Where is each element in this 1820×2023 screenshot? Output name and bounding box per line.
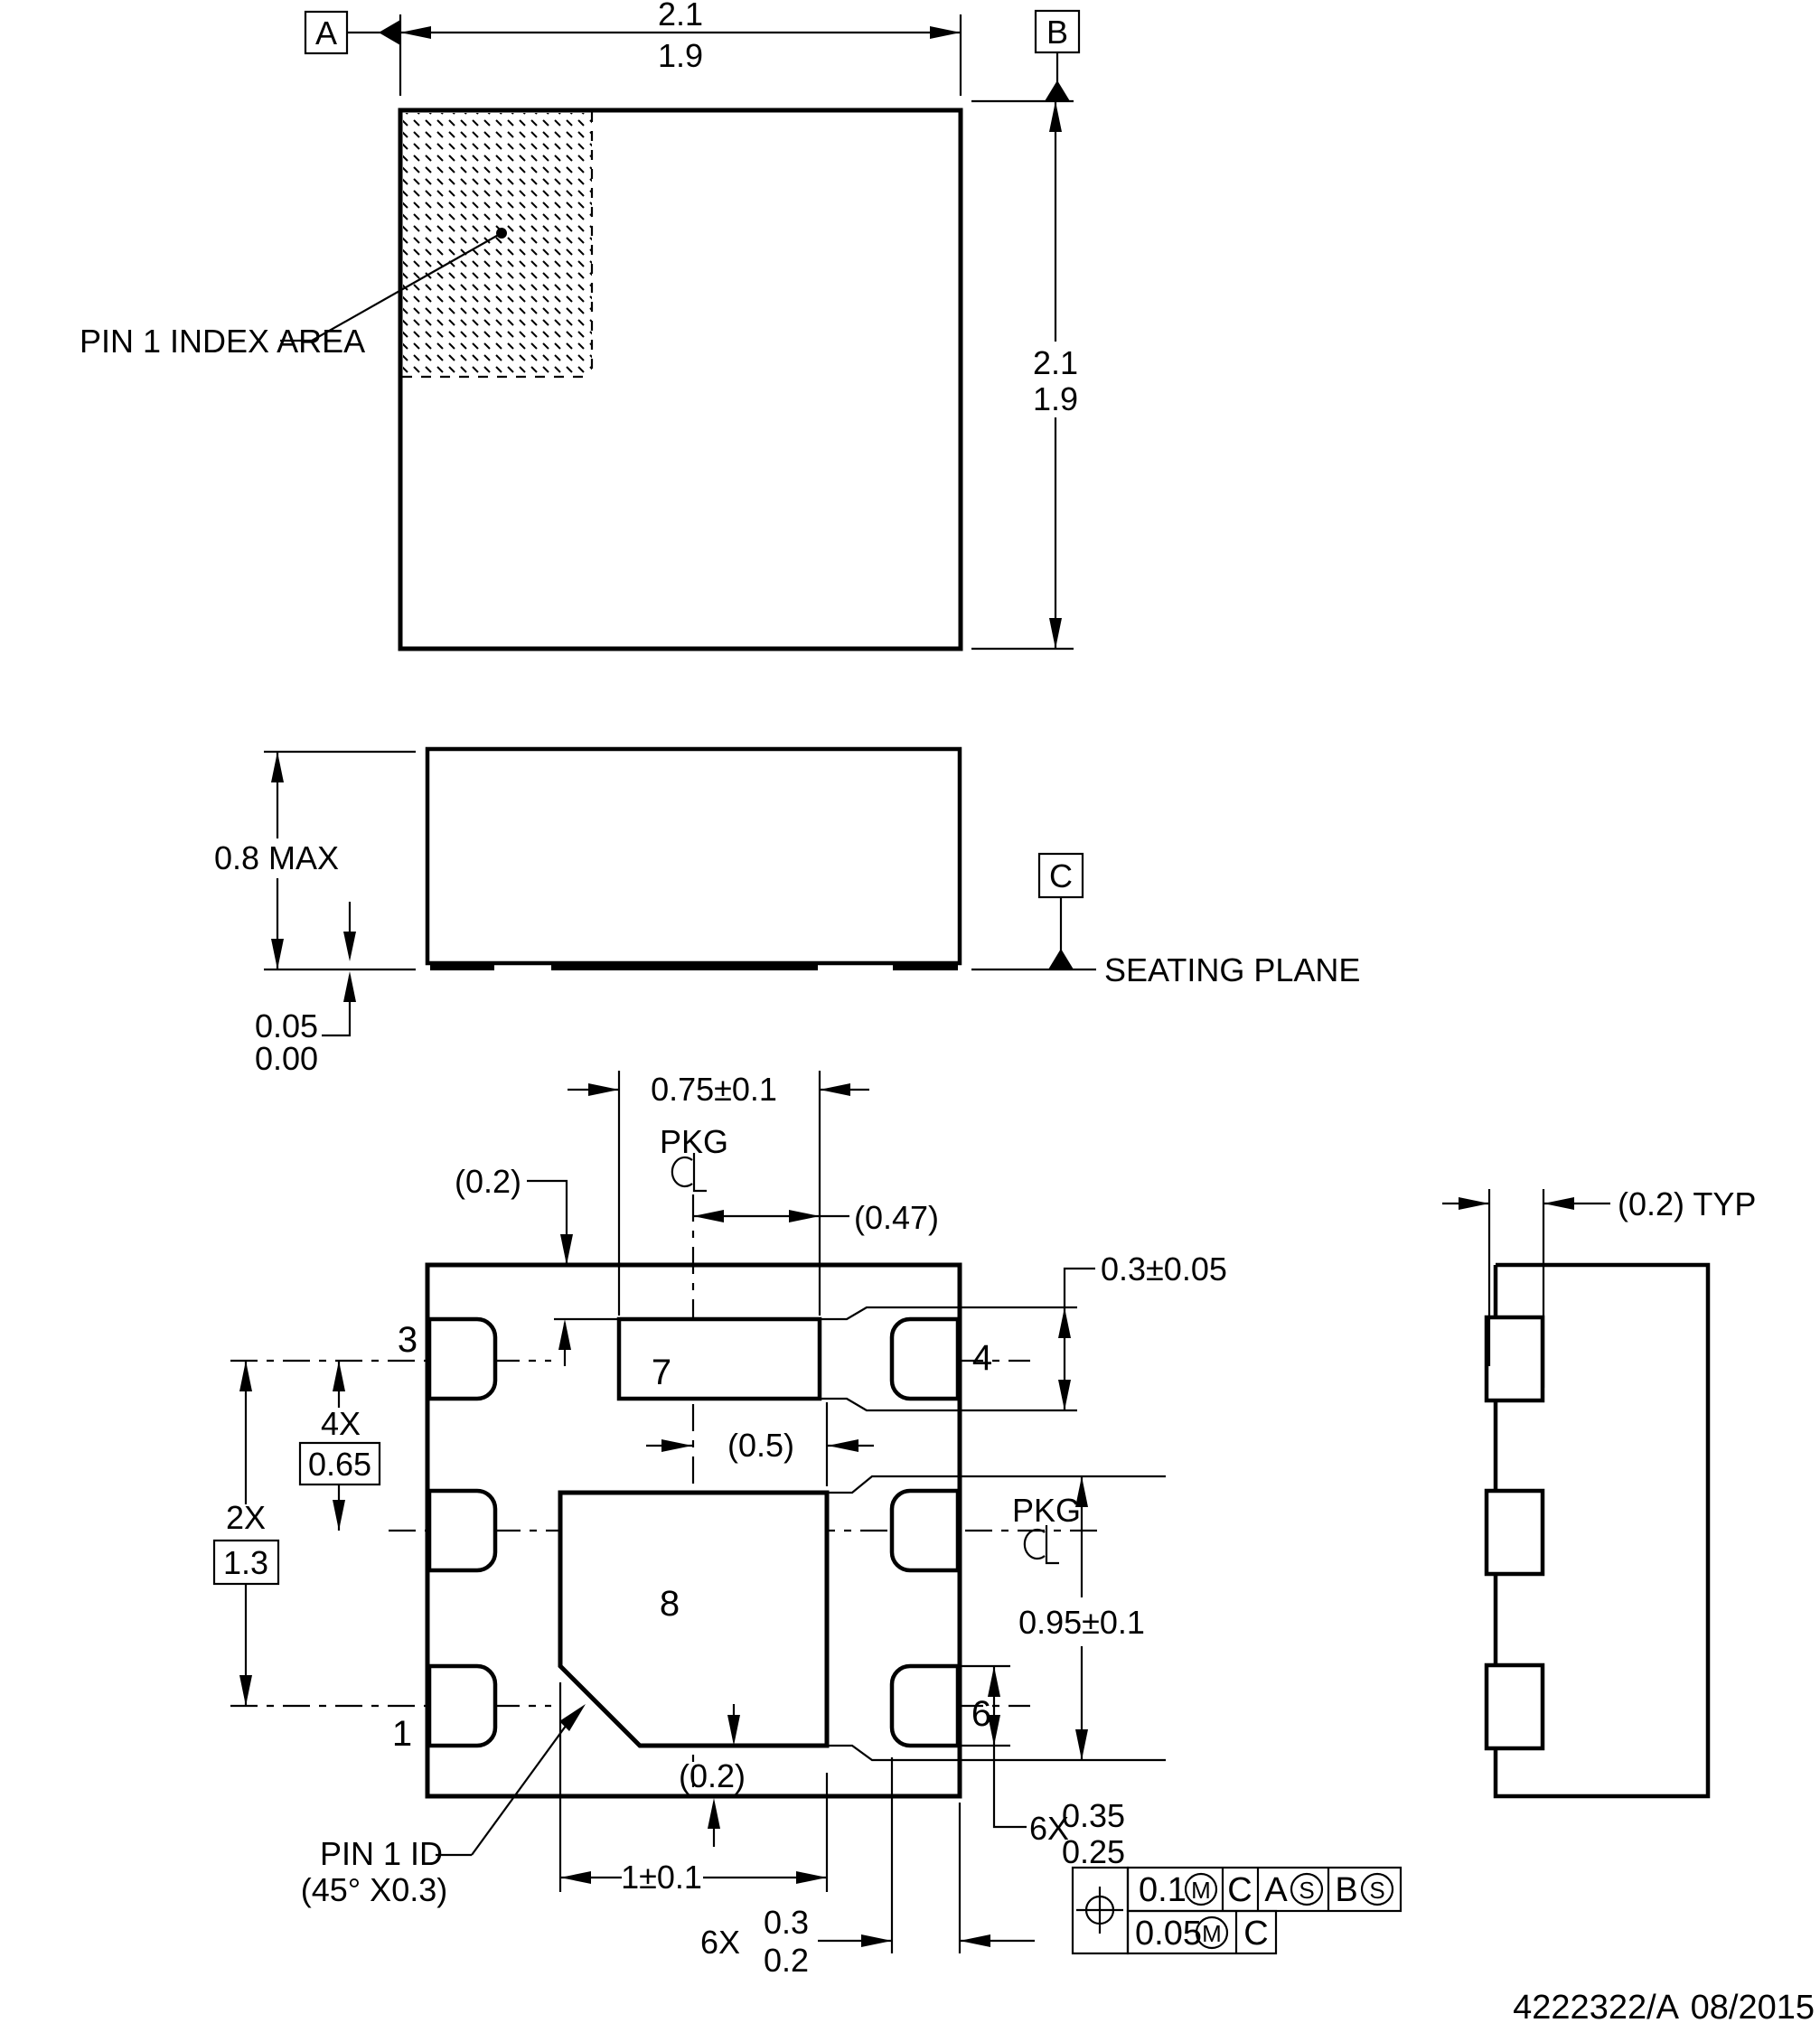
leader	[1065, 1269, 1095, 1307]
pkg-label-right: PKG	[1012, 1492, 1081, 1529]
arrowhead	[588, 1083, 619, 1096]
package-outline-drawing: PIN 1 INDEX AREA 2.1 1.9 A B 2.1 1.9	[0, 0, 1820, 2023]
top-height-max: 2.1	[1033, 344, 1078, 381]
pitch-count: 4X	[321, 1405, 361, 1442]
arrowhead	[560, 1871, 591, 1884]
datum-c-label: C	[1049, 857, 1073, 894]
arrowhead	[1049, 618, 1062, 649]
pad-pin2	[429, 1491, 495, 1570]
pad-pin3	[429, 1319, 495, 1399]
pin-label-8: 8	[660, 1584, 680, 1624]
side-view: 0.8 MAX 0.05 0.00 C SEATING PLANE	[214, 749, 1360, 1077]
pad-pin4	[892, 1319, 958, 1399]
pad-len6-max: 0.35	[1062, 1797, 1125, 1834]
gap-top-dim: (0.2)	[455, 1163, 521, 1200]
pin1-id-chamfer: (45° X0.3)	[301, 1871, 447, 1908]
ext-line-jogged	[827, 1746, 1166, 1760]
pad8-height-dim: 0.95±0.1	[1018, 1604, 1145, 1641]
fcf-datum-b: B	[1335, 1871, 1357, 1909]
pad-pin5	[892, 1491, 958, 1570]
right-view-lead	[1487, 1317, 1543, 1400]
side-height-dim: 0.8 MAX	[214, 839, 339, 876]
pad-pin7	[619, 1319, 820, 1399]
feature-control-frame: 0.1 M C A S B S 0.05 M C	[1073, 1868, 1401, 1953]
side-lead-right	[893, 963, 958, 970]
arrowhead	[960, 1934, 990, 1947]
arrowhead	[1058, 1307, 1071, 1338]
arrowhead	[271, 939, 284, 969]
cl-to-pad8-dim: (0.5)	[727, 1427, 794, 1464]
position-symbol-icon	[1076, 1887, 1123, 1934]
arrowhead	[930, 26, 961, 39]
arrowhead	[861, 1934, 892, 1947]
arrowhead	[333, 1361, 345, 1391]
bottom-view: 3 4 1 6 7 8 0.75±0.1 PKG (0.2) (0.47)	[214, 1071, 1227, 1979]
arrowhead	[789, 1210, 820, 1222]
top-width-max: 2.1	[658, 0, 703, 33]
standoff-min: 0.00	[255, 1040, 318, 1077]
right-view-lead	[1487, 1665, 1543, 1748]
datum-c-triangle-icon	[1048, 949, 1074, 969]
standoff-max: 0.05	[255, 1007, 318, 1044]
arrowhead	[708, 1798, 720, 1829]
arrowhead	[1075, 1729, 1088, 1760]
top-height-min: 1.9	[1033, 380, 1078, 417]
arrowhead	[796, 1871, 827, 1884]
arrowhead	[1058, 1380, 1071, 1410]
lead-thickness-dim: (0.2) TYP	[1618, 1185, 1756, 1222]
arrowhead	[820, 1083, 850, 1096]
standoff-leader	[322, 976, 350, 1035]
fcf-tol1: 0.1	[1139, 1871, 1187, 1909]
seating-plane-label: SEATING PLANE	[1104, 951, 1360, 988]
pin-label-1: 1	[392, 1714, 412, 1754]
pad-w6-max: 0.3	[764, 1904, 809, 1941]
pad-w6-min: 0.2	[764, 1942, 809, 1979]
fcf-mod2: M	[1202, 1920, 1222, 1947]
arrowhead	[343, 971, 356, 1002]
drawing-page: PIN 1 INDEX AREA 2.1 1.9 A B 2.1 1.9	[0, 0, 1820, 2023]
datum-a-label: A	[315, 14, 337, 52]
fcf-mod-b: S	[1369, 1877, 1384, 1904]
ext-line-jogged	[827, 1476, 1166, 1493]
doc-date: 08/2015	[1691, 1989, 1815, 2023]
pin-label-6: 6	[971, 1694, 991, 1734]
arrowhead	[271, 752, 284, 782]
pad-pin1	[429, 1666, 495, 1746]
gap-top-leader	[527, 1181, 567, 1263]
cl-to-pad7-dim: (0.47)	[854, 1199, 939, 1236]
datum-b-label: B	[1046, 14, 1068, 51]
datum-a-triangle-icon	[379, 20, 400, 45]
pin-label-3: 3	[398, 1320, 417, 1360]
pad8-width-dim: 1±0.1	[621, 1859, 702, 1896]
pin1-index-hatch-area	[403, 113, 592, 377]
footer: 4222322/A 08/2015	[1513, 1989, 1815, 2023]
fcf-datum-c2: C	[1243, 1915, 1268, 1953]
arrowhead	[1543, 1197, 1574, 1210]
pin1-index-label: PIN 1 INDEX AREA	[80, 323, 365, 360]
fcf-tol2: 0.05	[1135, 1915, 1202, 1953]
top-width-min: 1.9	[658, 37, 703, 74]
gap-bottom-dim: (0.2)	[679, 1757, 746, 1794]
fcf-mod-a: S	[1299, 1877, 1314, 1904]
arrowhead	[343, 932, 356, 961]
arrowhead	[559, 1704, 586, 1731]
pad-pin6	[892, 1666, 958, 1746]
leader	[994, 1746, 1027, 1827]
side-lead-center	[551, 963, 818, 970]
arrowhead	[693, 1210, 724, 1222]
arrowhead	[1049, 101, 1062, 132]
arrowhead	[661, 1439, 692, 1452]
span-dim: 1.3	[223, 1544, 268, 1581]
span-count: 2X	[226, 1499, 266, 1536]
side-view-outline	[427, 749, 960, 963]
pad-pin8	[560, 1493, 827, 1746]
arrowhead	[333, 1500, 345, 1531]
pin1-id-label: PIN 1 ID	[320, 1835, 443, 1872]
arrowhead	[239, 1675, 252, 1706]
datum-b-triangle-icon	[1045, 80, 1070, 101]
right-view-lead	[1487, 1491, 1543, 1574]
pad-len6-min: 0.25	[1062, 1833, 1125, 1870]
right-side-view: (0.2) TYP	[1442, 1185, 1756, 1796]
arrowhead	[988, 1666, 1000, 1697]
arrowhead	[558, 1319, 571, 1350]
pitch-dim: 0.65	[308, 1446, 371, 1483]
pad-length-dim: 0.3±0.05	[1101, 1250, 1227, 1288]
pin-label-4: 4	[972, 1338, 992, 1378]
fcf-datum-a: A	[1264, 1871, 1288, 1909]
arrowhead	[560, 1234, 573, 1265]
arrowhead	[828, 1439, 858, 1452]
pin-label-7: 7	[652, 1353, 671, 1392]
pad-w6-count: 6X	[700, 1924, 740, 1961]
doc-number: 4222322/A	[1513, 1989, 1679, 2023]
top-view: PIN 1 INDEX AREA 2.1 1.9 A B 2.1 1.9	[80, 0, 1079, 649]
arrowhead	[400, 26, 431, 39]
fcf-mod1: M	[1191, 1877, 1211, 1904]
arrowhead	[239, 1361, 252, 1391]
side-lead-left	[430, 963, 494, 970]
arrowhead	[1459, 1197, 1489, 1210]
fcf-datum-c: C	[1227, 1871, 1252, 1909]
pad7-width-dim: 0.75±0.1	[651, 1071, 777, 1108]
